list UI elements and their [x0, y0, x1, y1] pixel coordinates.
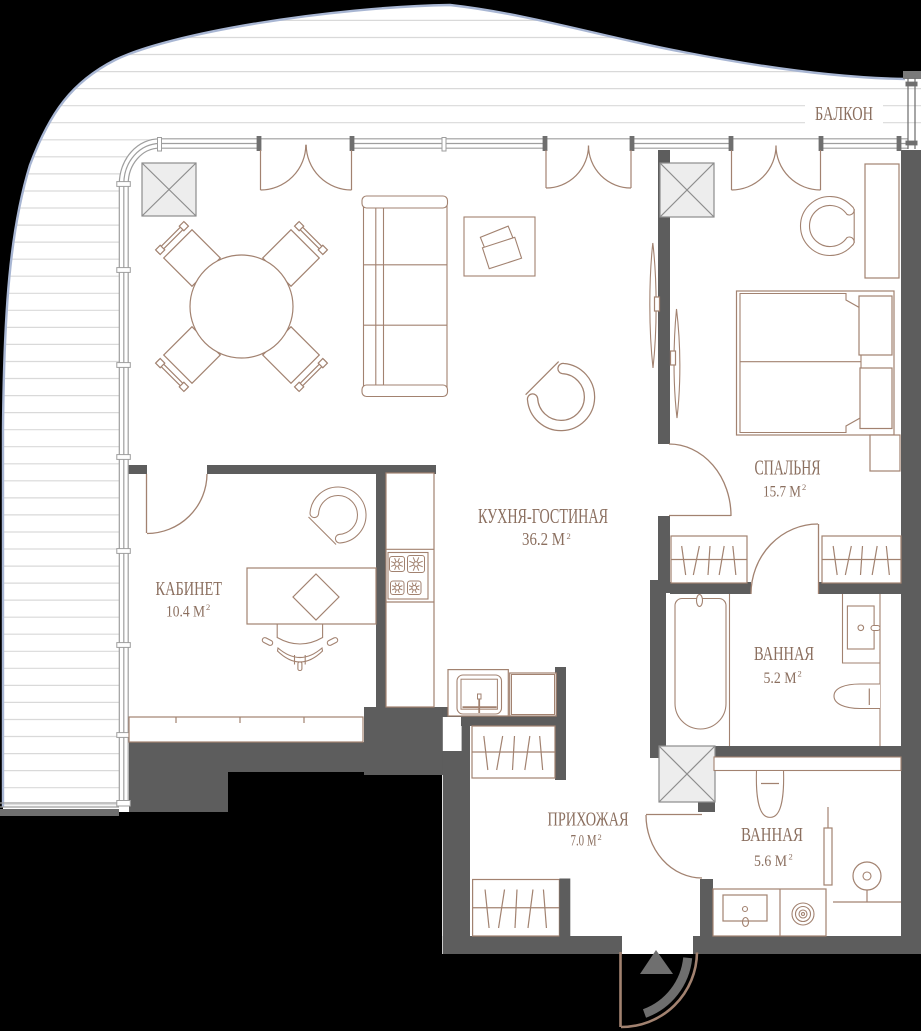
svg-text:15.7 М: 15.7 М	[763, 484, 801, 501]
svg-text:2: 2	[798, 669, 802, 679]
svg-text:10.4 М: 10.4 М	[166, 604, 205, 621]
svg-text:2: 2	[206, 602, 210, 612]
svg-text:2: 2	[802, 482, 806, 492]
svg-text:ВАННАЯ: ВАННАЯ	[741, 824, 803, 846]
svg-text:2: 2	[789, 852, 793, 862]
svg-text:2: 2	[598, 832, 602, 842]
svg-text:СПАЛЬНЯ: СПАЛЬНЯ	[755, 456, 821, 480]
svg-text:БАЛКОН: БАЛКОН	[815, 103, 873, 125]
svg-text:КАБИНЕТ: КАБИНЕТ	[156, 578, 223, 600]
svg-text:7.0 М: 7.0 М	[571, 833, 597, 850]
svg-text:ВАННАЯ: ВАННАЯ	[754, 643, 814, 665]
svg-text:ПРИХОЖАЯ: ПРИХОЖАЯ	[548, 809, 629, 831]
svg-text:5.2 М: 5.2 М	[764, 670, 797, 687]
svg-text:КУХНЯ-ГОСТИНАЯ: КУХНЯ-ГОСТИНАЯ	[478, 504, 608, 528]
svg-text:2: 2	[567, 531, 571, 541]
svg-text:36.2 М: 36.2 М	[522, 529, 565, 549]
svg-text:5.6 М: 5.6 М	[754, 853, 787, 870]
